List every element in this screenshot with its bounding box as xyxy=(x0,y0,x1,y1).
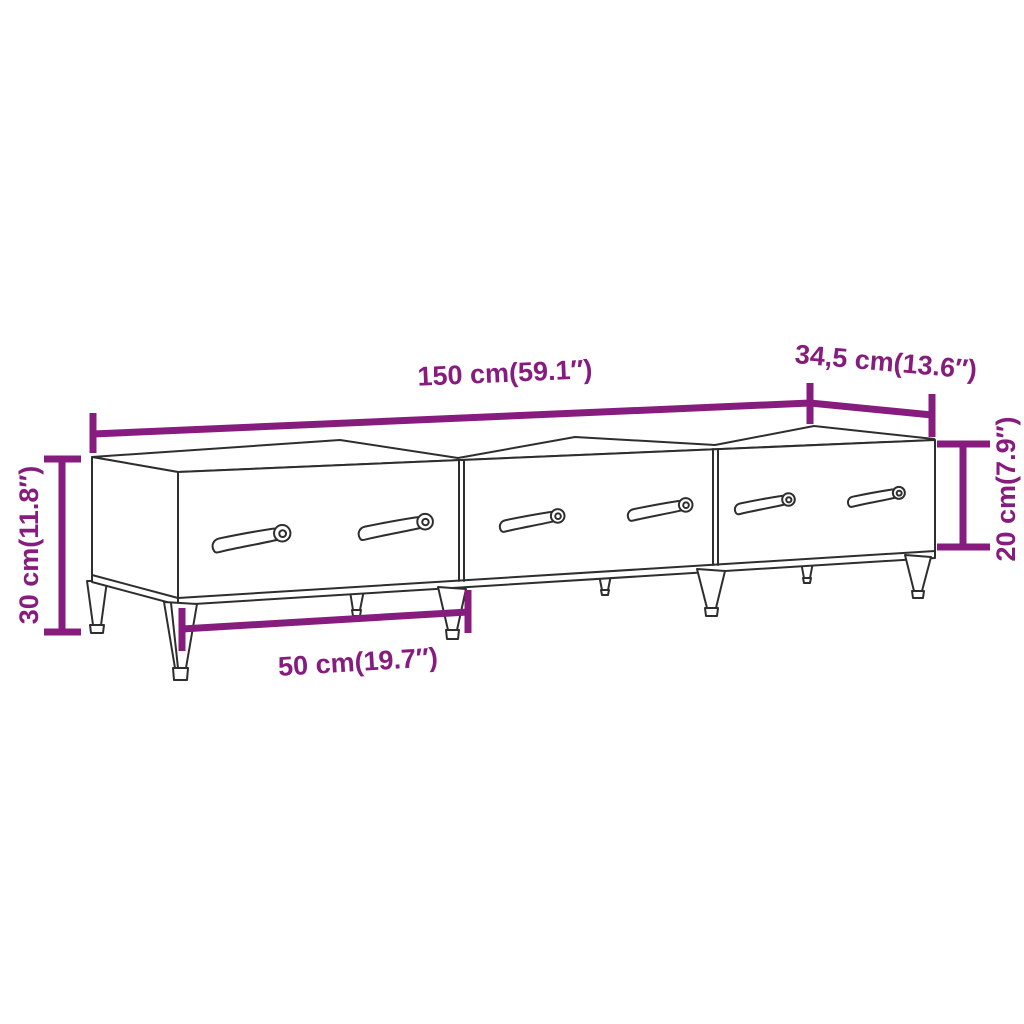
dimension-depth-line xyxy=(810,403,932,415)
cabinet-leg-front-foot xyxy=(173,668,188,680)
dimension-width-line xyxy=(93,403,810,434)
dimension-height xyxy=(44,459,81,632)
dimension-body-height xyxy=(937,444,990,547)
cabinet-leg-front-foot xyxy=(446,630,459,639)
cabinet-leg-front xyxy=(438,587,466,630)
cabinet-leg-back xyxy=(87,581,107,625)
dimension-depth-label: 34,5 cm(13.6″) xyxy=(794,339,978,385)
cabinet-leg-back-foot xyxy=(601,590,609,595)
product-dimension-diagram: 150 cm(59.1″) 34,5 cm(13.6″) 30 cm(11.8″… xyxy=(0,0,1024,1024)
cabinet-leg-back-foot xyxy=(803,578,811,583)
dimension-height-label: 30 cm(11.8″) xyxy=(14,466,44,625)
cabinet-side-panel xyxy=(92,457,178,605)
cabinet-leg-back-foot xyxy=(90,625,104,633)
diagram-canvas: 150 cm(59.1″) 34,5 cm(13.6″) 30 cm(11.8″… xyxy=(0,0,1024,1024)
cabinet-leg-front-foot xyxy=(705,608,718,616)
dimension-drawer-width-label: 50 cm(19.7″) xyxy=(277,642,439,682)
cabinet-leg-front xyxy=(905,555,931,591)
cabinet-leg-front-foot xyxy=(912,591,924,598)
dimension-body-height-label: 20 cm(7.9″) xyxy=(991,416,1021,561)
cabinet-leg-front xyxy=(697,569,725,608)
dimension-drawer-width-line xyxy=(182,612,468,629)
dimension-width xyxy=(93,383,810,453)
dimension-width-label: 150 cm(59.1″) xyxy=(417,354,593,392)
tv-cabinet-drawing xyxy=(87,426,935,680)
